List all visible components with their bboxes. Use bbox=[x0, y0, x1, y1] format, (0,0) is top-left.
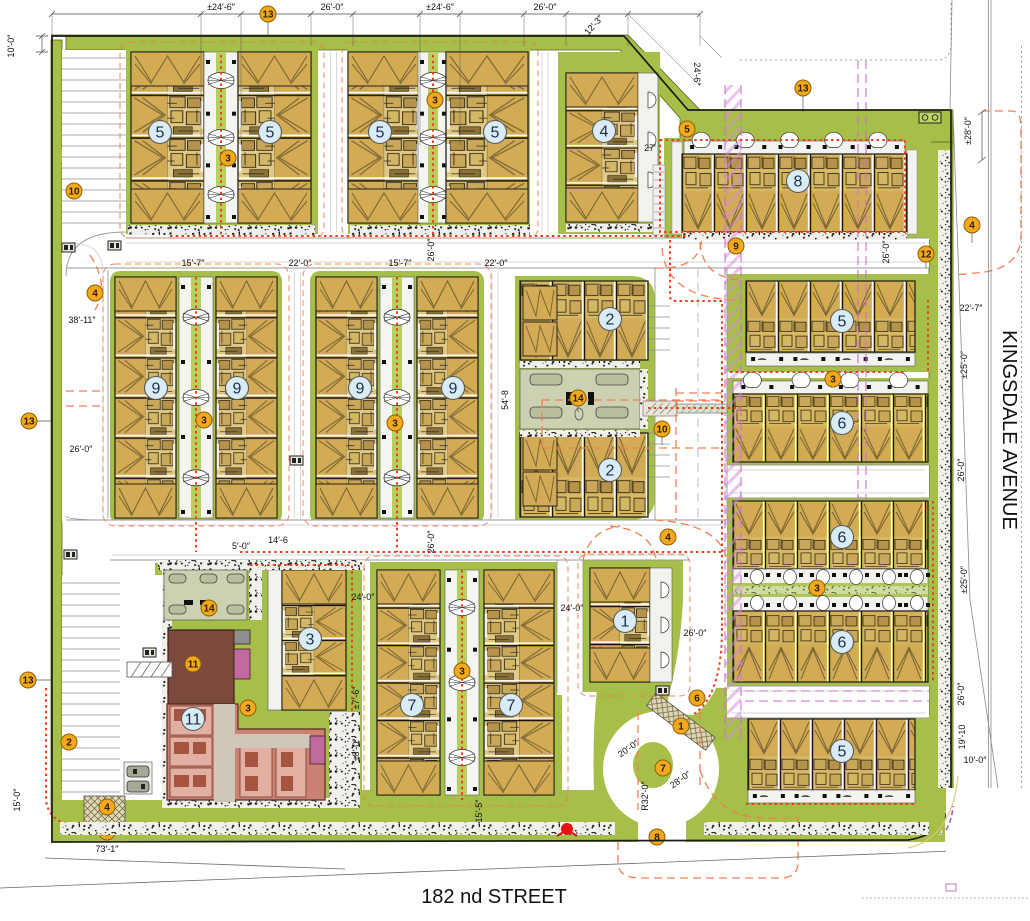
svg-text:24′-0″: 24′-0″ bbox=[561, 603, 585, 613]
svg-text:10: 10 bbox=[656, 425, 668, 436]
svg-text:22′-0″: 22′-0″ bbox=[289, 258, 313, 268]
svg-text:5: 5 bbox=[266, 125, 275, 142]
svg-text:11: 11 bbox=[185, 712, 202, 729]
svg-text:10′-0″: 10′-0″ bbox=[6, 34, 16, 58]
svg-text:±25′-0″: ±25′-0″ bbox=[959, 350, 969, 379]
svg-text:12: 12 bbox=[920, 250, 932, 261]
svg-text:26′-0″: 26′-0″ bbox=[684, 628, 708, 638]
svg-text:5: 5 bbox=[838, 744, 847, 761]
svg-text:2: 2 bbox=[66, 738, 72, 749]
svg-text:3: 3 bbox=[245, 704, 251, 715]
svg-text:13: 13 bbox=[22, 676, 34, 687]
svg-text:73′-1″: 73′-1″ bbox=[96, 844, 120, 854]
svg-text:19′-10: 19′-10 bbox=[957, 725, 967, 750]
svg-text:R32′-0″: R32′-0″ bbox=[640, 780, 650, 810]
svg-text:26′-0″: 26′-0″ bbox=[881, 240, 891, 264]
svg-text:3: 3 bbox=[459, 667, 465, 678]
svg-text:26′-0″: 26′-0″ bbox=[321, 2, 345, 12]
svg-text:13: 13 bbox=[262, 10, 274, 21]
svg-text:5′-0″: 5′-0″ bbox=[232, 541, 251, 551]
svg-text:6: 6 bbox=[694, 694, 700, 705]
svg-text:2: 2 bbox=[606, 463, 615, 480]
svg-text:9: 9 bbox=[356, 381, 365, 398]
svg-text:4: 4 bbox=[600, 124, 609, 141]
svg-text:26′-0″: 26′-0″ bbox=[426, 238, 436, 262]
svg-text:±8′-0″: ±8′-0″ bbox=[351, 738, 361, 762]
svg-text:26′-0″: 26′-0″ bbox=[956, 458, 966, 482]
svg-text:3: 3 bbox=[830, 375, 836, 386]
svg-text:26′-0″: 26′-0″ bbox=[956, 682, 966, 706]
svg-text:4: 4 bbox=[969, 221, 975, 232]
svg-text:KINGSDALE AVENUE: KINGSDALE AVENUE bbox=[998, 330, 1020, 530]
svg-text:24′-0″: 24′-0″ bbox=[352, 592, 376, 602]
svg-text:10′-0″: 10′-0″ bbox=[964, 755, 988, 765]
svg-text:26′-0″: 26′-0″ bbox=[426, 530, 436, 554]
svg-text:13: 13 bbox=[797, 84, 809, 95]
svg-text:22′-7″: 22′-7″ bbox=[960, 303, 984, 313]
svg-text:±28′-0″: ±28′-0″ bbox=[963, 116, 973, 145]
svg-text:54′-8: 54′-8 bbox=[500, 390, 510, 410]
svg-text:9: 9 bbox=[733, 242, 739, 253]
svg-text:26′-0″: 26′-0″ bbox=[70, 444, 94, 454]
svg-text:3: 3 bbox=[392, 419, 398, 430]
svg-text:26′-0″: 26′-0″ bbox=[534, 2, 558, 12]
svg-text:13: 13 bbox=[23, 417, 35, 428]
svg-text:3: 3 bbox=[432, 96, 438, 107]
svg-text:14′-6: 14′-6 bbox=[268, 535, 288, 545]
svg-text:7: 7 bbox=[507, 698, 516, 715]
svg-text:3: 3 bbox=[201, 416, 207, 427]
svg-text:1: 1 bbox=[678, 722, 684, 733]
svg-text:15′-0″: 15′-0″ bbox=[12, 788, 22, 812]
svg-text:3: 3 bbox=[814, 584, 820, 595]
svg-text:1: 1 bbox=[621, 614, 630, 631]
svg-text:9: 9 bbox=[449, 381, 458, 398]
svg-text:22′-0″: 22′-0″ bbox=[485, 258, 509, 268]
svg-text:±24′-6″: ±24′-6″ bbox=[207, 2, 236, 12]
svg-text:6: 6 bbox=[838, 530, 847, 547]
svg-text:7: 7 bbox=[660, 764, 666, 775]
svg-text:2: 2 bbox=[606, 312, 615, 329]
svg-text:14: 14 bbox=[572, 394, 584, 405]
svg-text:8: 8 bbox=[794, 174, 803, 191]
svg-text:7: 7 bbox=[408, 698, 417, 715]
svg-text:9: 9 bbox=[233, 381, 242, 398]
svg-text:4: 4 bbox=[665, 533, 671, 544]
svg-text:14: 14 bbox=[203, 604, 215, 615]
svg-text:5: 5 bbox=[156, 125, 165, 142]
svg-text:182 nd STREET: 182 nd STREET bbox=[421, 886, 567, 908]
svg-text:±24′-6″: ±24′-6″ bbox=[426, 2, 455, 12]
svg-text:5: 5 bbox=[376, 125, 385, 142]
svg-text:6: 6 bbox=[838, 416, 847, 433]
svg-text:15′-7″: 15′-7″ bbox=[389, 258, 413, 268]
svg-text:6: 6 bbox=[838, 635, 847, 652]
svg-text:38′-11″: 38′-11″ bbox=[68, 315, 96, 325]
svg-text:8: 8 bbox=[654, 833, 660, 844]
svg-text:4: 4 bbox=[92, 289, 98, 300]
svg-text:5: 5 bbox=[838, 314, 847, 331]
svg-text:4: 4 bbox=[104, 803, 110, 814]
svg-text:27′: 27′ bbox=[644, 143, 656, 153]
svg-text:3: 3 bbox=[225, 154, 231, 165]
svg-text:10: 10 bbox=[68, 187, 80, 198]
svg-text:±7′-6″: ±7′-6″ bbox=[351, 686, 361, 710]
svg-text:15′-5″: 15′-5″ bbox=[474, 799, 484, 823]
svg-text:5: 5 bbox=[684, 125, 690, 136]
svg-text:24′-6″: 24′-6″ bbox=[692, 63, 702, 87]
svg-text:3: 3 bbox=[306, 632, 315, 649]
svg-text:±25′-0″: ±25′-0″ bbox=[959, 565, 969, 594]
svg-text:9: 9 bbox=[152, 381, 161, 398]
svg-text:11: 11 bbox=[188, 660, 199, 671]
svg-text:15′-7″: 15′-7″ bbox=[182, 258, 206, 268]
svg-text:5: 5 bbox=[491, 125, 500, 142]
